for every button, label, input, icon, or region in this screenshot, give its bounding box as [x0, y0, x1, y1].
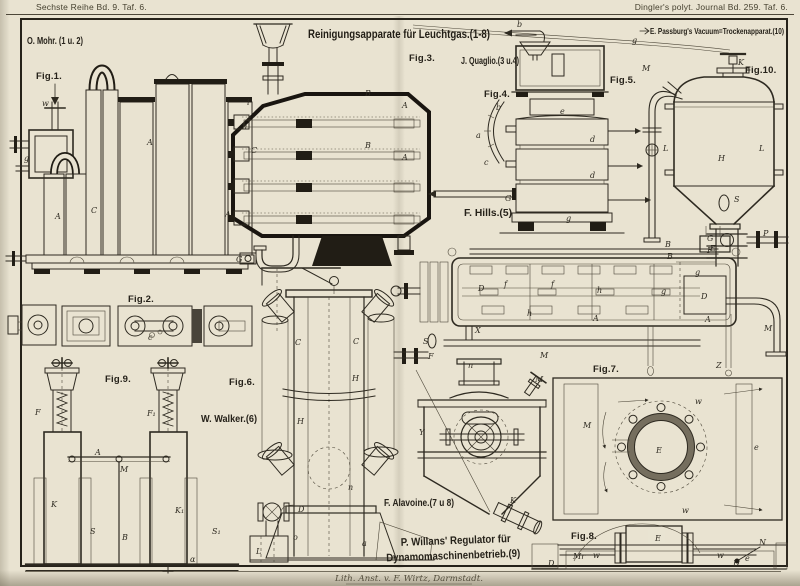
- part-label: K: [50, 500, 58, 509]
- part-label: g: [632, 36, 637, 45]
- part-label: S: [423, 337, 429, 346]
- fig1-caption: Fig.1.: [36, 71, 62, 82]
- part-label: A: [94, 448, 101, 457]
- fig9-caption: Fig.9.: [105, 374, 131, 385]
- part-label: M: [119, 465, 129, 474]
- part-label: w: [682, 506, 689, 515]
- part-label: h: [527, 309, 532, 318]
- part-label: H: [351, 374, 360, 383]
- part-label: A: [54, 212, 61, 221]
- part-label: a: [476, 131, 481, 140]
- part-label: B: [121, 533, 128, 542]
- part-label: K: [737, 58, 745, 67]
- part-label: L: [255, 547, 261, 556]
- part-label: A: [401, 153, 408, 162]
- part-label: C: [251, 146, 257, 155]
- fig3-caption: Fig.3.: [409, 53, 435, 64]
- part-label: c: [148, 333, 153, 342]
- part-label: g: [566, 214, 571, 223]
- part-label: n: [468, 361, 473, 370]
- attribution-hills: F. Hills.(5): [464, 208, 512, 219]
- page-edge-shadow: [0, 570, 800, 586]
- part-label: M: [763, 324, 773, 333]
- part-label: E: [654, 534, 661, 543]
- part-label: B: [364, 141, 371, 150]
- part-label: d: [590, 135, 595, 144]
- part-label: e: [560, 107, 565, 116]
- part-label: M: [534, 375, 544, 384]
- part-label: F: [427, 352, 434, 361]
- part-label: D: [700, 292, 708, 301]
- fig4-caption: Fig.4.: [484, 89, 510, 100]
- part-label: Z: [715, 361, 722, 370]
- part-label: S: [734, 195, 740, 204]
- fig6-caption: Fig.6.: [229, 377, 255, 388]
- part-label: b: [517, 20, 522, 29]
- part-label: w: [42, 99, 49, 108]
- part-label: e: [745, 554, 750, 563]
- part-label: M: [539, 351, 549, 360]
- part-label: A: [401, 101, 408, 110]
- header-left: Sechste Reihe Bd. 9. Taf. 6.: [36, 2, 147, 12]
- part-label: a: [362, 539, 367, 548]
- fig2-caption: Fig.2.: [128, 294, 154, 305]
- part-label: B: [664, 240, 671, 249]
- part-label: E: [655, 446, 662, 455]
- plate-title-right: E. Passburg's Vacuum=Trockenapparat.(10): [650, 26, 784, 36]
- part-label: D: [477, 284, 485, 293]
- part-label: w: [593, 551, 600, 560]
- part-label: A: [592, 314, 599, 323]
- part-label: H: [296, 417, 305, 426]
- part-label: P: [762, 229, 769, 238]
- part-label: A: [704, 315, 711, 324]
- part-label: C: [353, 337, 359, 346]
- part-label: g: [24, 154, 29, 163]
- attribution-mohr: O. Mohr. (1 u. 2): [27, 36, 83, 47]
- part-label: G: [236, 255, 243, 264]
- part-label: N: [758, 538, 767, 547]
- fig7-caption: Fig.7.: [593, 364, 619, 375]
- part-label: E: [709, 244, 716, 253]
- part-label: o: [293, 533, 298, 542]
- part-label: G: [505, 194, 512, 203]
- part-label: F: [34, 408, 41, 417]
- part-label: Mr: [572, 552, 586, 561]
- fig8-caption: Fig.8.: [571, 531, 597, 542]
- part-label: B: [666, 252, 673, 261]
- attribution-walker: W. Walker.(6): [201, 414, 257, 425]
- part-label: i: [247, 98, 250, 107]
- plate-svg: Sechste Reihe Bd. 9. Taf. 6. Dingler's p…: [0, 0, 800, 586]
- part-label: L: [758, 144, 764, 153]
- part-label: A: [146, 138, 153, 147]
- part-label: M: [641, 64, 651, 73]
- part-label: e: [754, 443, 759, 452]
- part-label: Y: [419, 428, 425, 437]
- part-label: α: [190, 555, 196, 564]
- part-label: C: [91, 206, 97, 215]
- part-label: n: [242, 122, 247, 131]
- part-label: F₁: [146, 409, 156, 418]
- part-label: D: [547, 559, 555, 568]
- part-label: H: [717, 154, 726, 163]
- part-label: d: [590, 171, 595, 180]
- attribution-alavoine: F. Alavoine.(7 u 8): [384, 498, 454, 509]
- part-label: L: [662, 144, 668, 153]
- part-label: D: [297, 505, 305, 514]
- part-label: K: [509, 496, 517, 505]
- part-label: D: [732, 559, 740, 568]
- fig5-caption: Fig.5.: [610, 75, 636, 86]
- part-label: n: [348, 483, 353, 492]
- part-label: X: [474, 326, 481, 335]
- part-label: w: [695, 397, 702, 406]
- plate-title: Reinigungsapparate für Leuchtgas.(1-8): [308, 27, 490, 41]
- part-label: h: [597, 286, 602, 295]
- header-right: Dingler's polyt. Journal Bd. 259. Taf. 6…: [635, 2, 788, 12]
- part-label: G: [707, 234, 714, 243]
- part-label: g: [695, 268, 700, 277]
- part-label: w: [717, 551, 724, 560]
- lithograph-plate: Sechste Reihe Bd. 9. Taf. 6. Dingler's p…: [0, 0, 800, 586]
- attribution-quaglio: J. Quaglio.(3 u.4): [461, 56, 519, 67]
- part-label: M: [582, 421, 592, 430]
- part-label: K₁: [174, 506, 184, 515]
- part-label: b: [496, 103, 501, 112]
- part-label: S: [90, 527, 96, 536]
- fig10-caption: Fig.10.: [745, 65, 777, 76]
- part-label: C: [295, 338, 301, 347]
- part-label: B: [364, 89, 371, 98]
- page-fold-shading: [393, 16, 405, 568]
- part-label: S₁: [212, 527, 221, 536]
- part-label: g: [661, 287, 666, 296]
- part-label: c: [484, 158, 489, 167]
